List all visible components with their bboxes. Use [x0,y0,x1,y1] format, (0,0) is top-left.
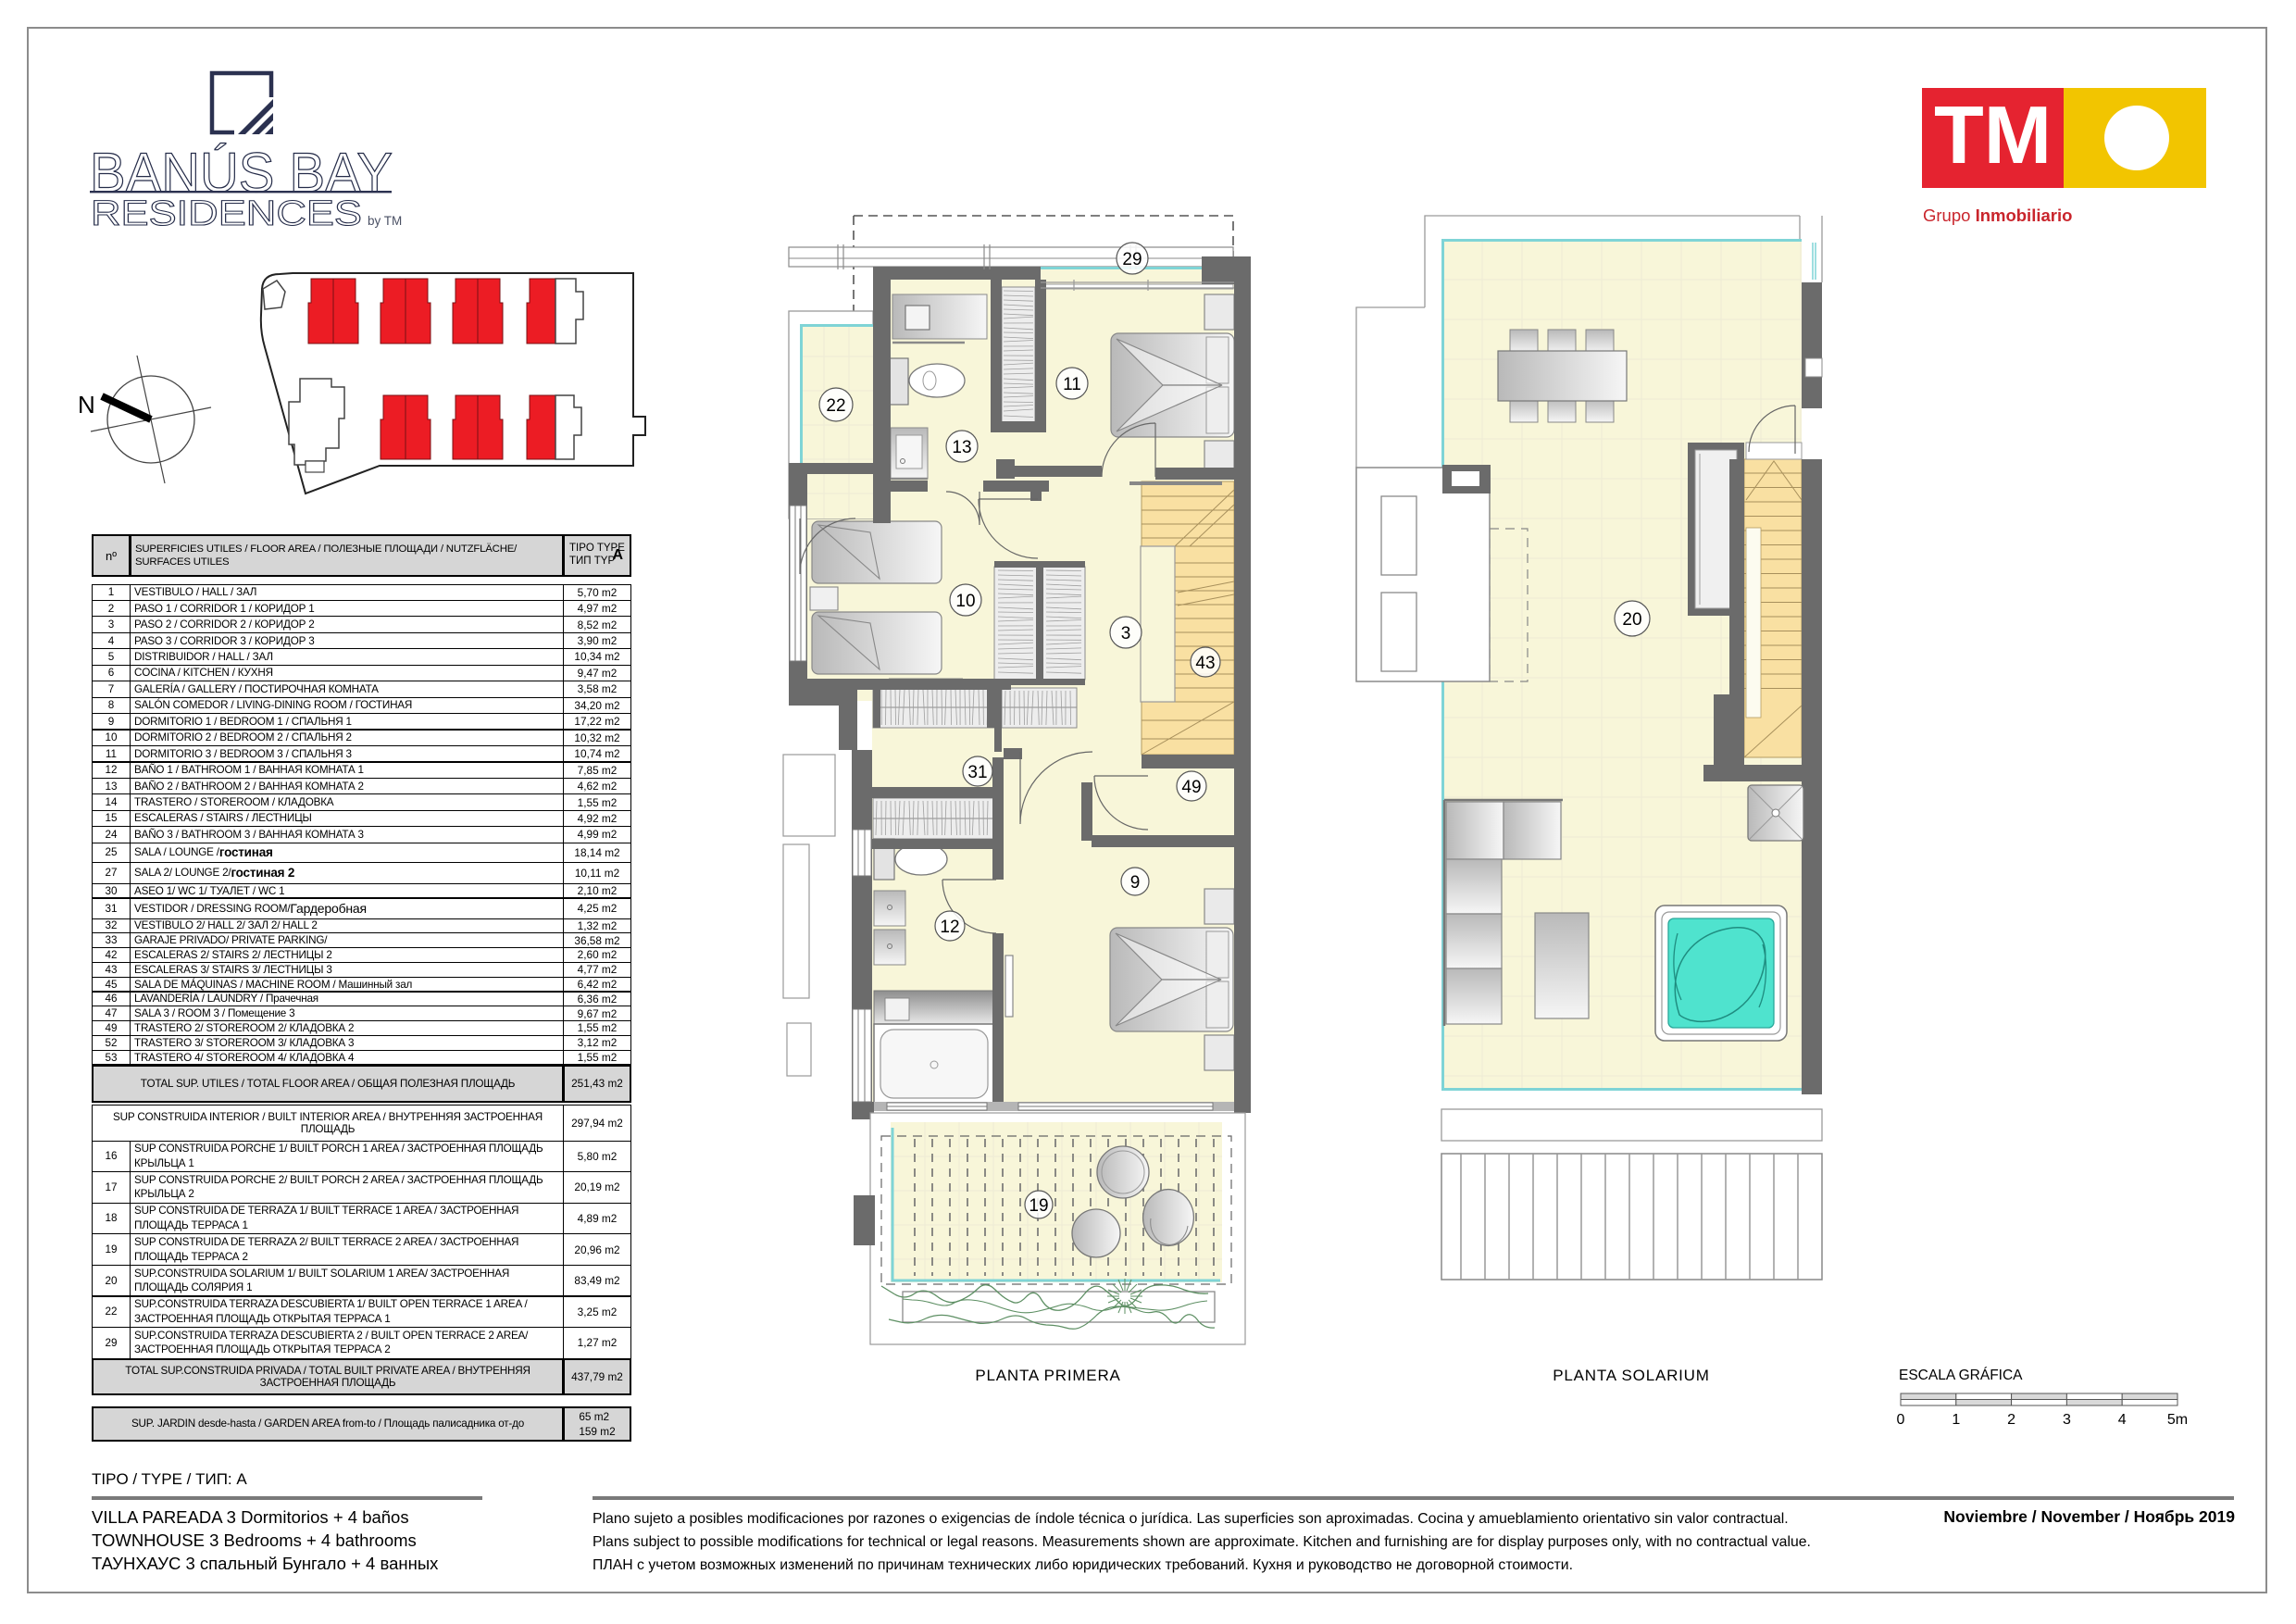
svg-text:3: 3 [1121,624,1131,643]
svg-text:RESIDENCES: RESIDENCES [91,194,362,233]
svg-text:43: 43 [1195,654,1215,673]
svg-text:11: 11 [1063,375,1081,394]
svg-text:9: 9 [1130,873,1141,893]
svg-text:13: 13 [952,438,971,457]
svg-text:12: 12 [940,918,959,937]
svg-text:20: 20 [1622,610,1641,630]
svg-text:4: 4 [2118,1412,2127,1428]
svg-text:by TM: by TM [368,214,402,228]
svg-text:3: 3 [2063,1412,2071,1428]
svg-text:0: 0 [1897,1412,1905,1428]
svg-text:49: 49 [1181,778,1201,797]
svg-text:19: 19 [1029,1196,1048,1216]
svg-text:29: 29 [1122,250,1142,269]
svg-text:2: 2 [2007,1412,2015,1428]
svg-text:31: 31 [967,763,987,782]
svg-text:5m: 5m [2167,1412,2188,1428]
svg-text:10: 10 [955,592,975,611]
svg-text:N: N [78,391,95,418]
svg-text:1: 1 [1952,1412,1960,1428]
svg-text:22: 22 [826,396,845,416]
